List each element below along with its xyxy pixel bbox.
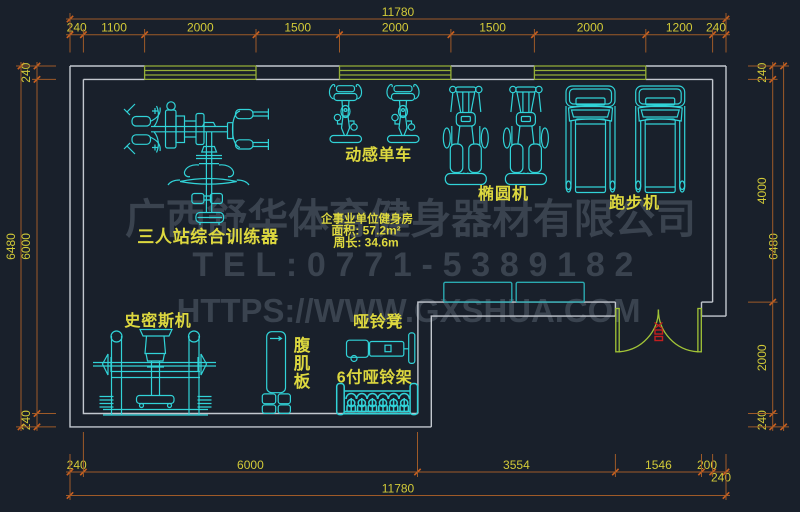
svg-text:1200: 1200 [666,21,693,35]
svg-text:2000: 2000 [187,21,214,35]
svg-text:240: 240 [19,62,33,82]
svg-text:6000: 6000 [19,233,33,260]
svg-text:跑步机: 跑步机 [609,193,660,212]
svg-text:6000: 6000 [237,458,264,472]
svg-text:6付哑铃架: 6付哑铃架 [337,368,412,387]
svg-text:1500: 1500 [284,21,311,35]
svg-text:3554: 3554 [503,458,530,472]
svg-text:1500: 1500 [479,21,506,35]
svg-text:HTTPS://WWW.GXSHUA.COM: HTTPS://WWW.GXSHUA.COM [177,292,641,329]
svg-text:1546: 1546 [645,458,672,472]
svg-text:椭圆机: 椭圆机 [478,184,529,203]
svg-text:板: 板 [294,371,311,391]
svg-text:240: 240 [706,21,726,35]
svg-text:4000: 4000 [755,177,769,204]
svg-text:肌: 肌 [293,354,311,373]
svg-text:周长: 34.6m: 周长: 34.6m [333,235,398,250]
svg-text:史密斯机: 史密斯机 [124,311,191,330]
svg-text:哑铃凳: 哑铃凳 [353,312,403,331]
svg-text:TEL:0771-5389182: TEL:0771-5389182 [192,246,633,284]
svg-text:240: 240 [711,471,731,485]
svg-text:2000: 2000 [755,344,769,371]
svg-text:2000: 2000 [382,21,409,35]
svg-text:腹: 腹 [294,335,311,355]
svg-text:三人站综合训练器: 三人站综合训练器 [137,227,279,247]
svg-text:动感单车: 动感单车 [345,145,411,164]
svg-text:2000: 2000 [577,21,604,35]
svg-text:6480: 6480 [767,233,781,260]
svg-text:11780: 11780 [382,482,415,496]
svg-text:11780: 11780 [382,5,415,19]
svg-text:6480: 6480 [4,233,18,260]
svg-text:1100: 1100 [101,21,127,35]
